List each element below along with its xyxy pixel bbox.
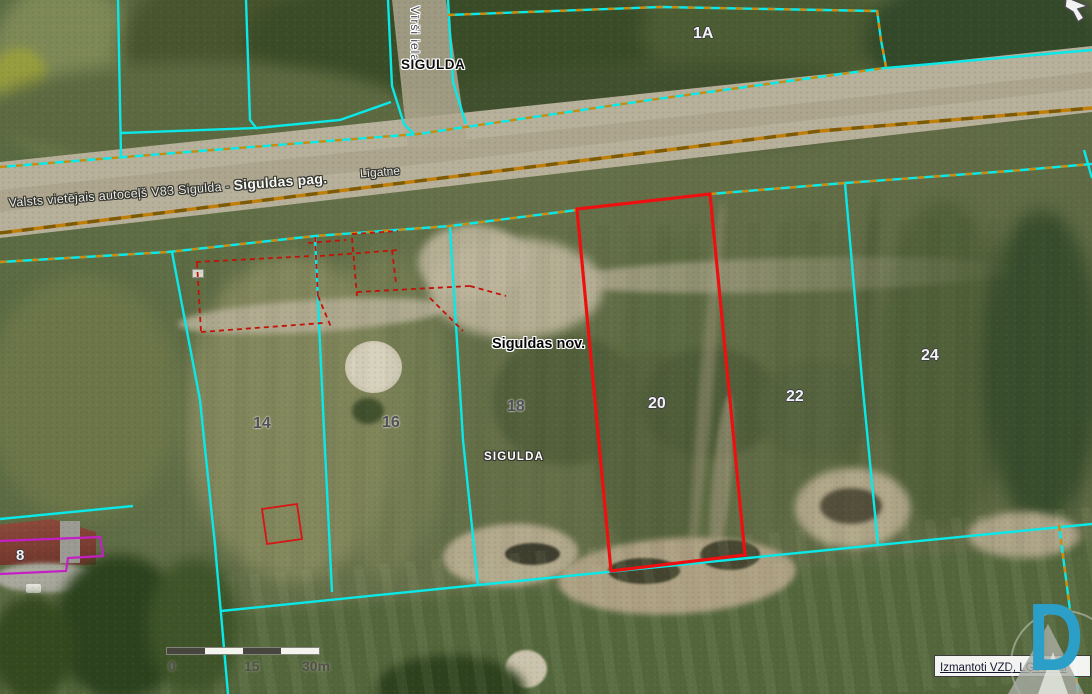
scale-bar: 0 15 30m <box>166 647 324 674</box>
photo-texture-blob <box>60 521 80 563</box>
photo-texture-blob <box>0 62 415 167</box>
place-label-sigulda-center: SIGULDA <box>484 451 544 464</box>
shed-building <box>192 269 204 278</box>
attribution-box: Izmantoti VZD, LĢIA dati <box>934 655 1091 677</box>
scale-bar-ticks: 0 15 30m <box>166 658 324 674</box>
parcel-label-14: 14 <box>253 415 271 433</box>
mouse-cursor-icon <box>1062 0 1092 25</box>
cadastre-map-viewport[interactable]: Vīrši iela SIGULDA Līgatne Valsts vietēj… <box>0 0 1092 694</box>
municipality-label: Siguldas nov. <box>492 337 585 353</box>
scale-bar-segment <box>167 648 205 654</box>
place-label-sigulda-top: SIGULDA <box>401 58 465 73</box>
parcel-label-16: 16 <box>382 414 400 432</box>
scale-bar-segment <box>281 648 319 654</box>
photo-texture-blob <box>177 217 1083 573</box>
parcel-label-8: 8 <box>16 548 24 565</box>
parcel-label-18: 18 <box>507 398 525 416</box>
scale-tick-15: 15 <box>244 658 260 674</box>
parcel-label-20: 20 <box>648 395 666 413</box>
house-roof <box>0 519 96 565</box>
scale-bar-segment <box>205 648 243 654</box>
parcel-label-22: 22 <box>786 388 804 406</box>
scale-tick-30m: 30m <box>302 658 330 674</box>
attribution-link[interactable]: Izmantoti VZD, LĢIA dati <box>940 662 1067 674</box>
parcel-label-1a: 1A <box>693 25 713 43</box>
scale-bar-track <box>166 647 320 655</box>
photo-texture-blob <box>425 62 905 147</box>
parcel-label-24: 24 <box>921 347 939 365</box>
scale-tick-0: 0 <box>168 658 176 674</box>
photo-texture-blob <box>0 275 180 520</box>
photo-texture-blob <box>26 584 41 593</box>
scale-bar-segment <box>243 648 281 654</box>
photo-texture-blob <box>865 0 1092 110</box>
